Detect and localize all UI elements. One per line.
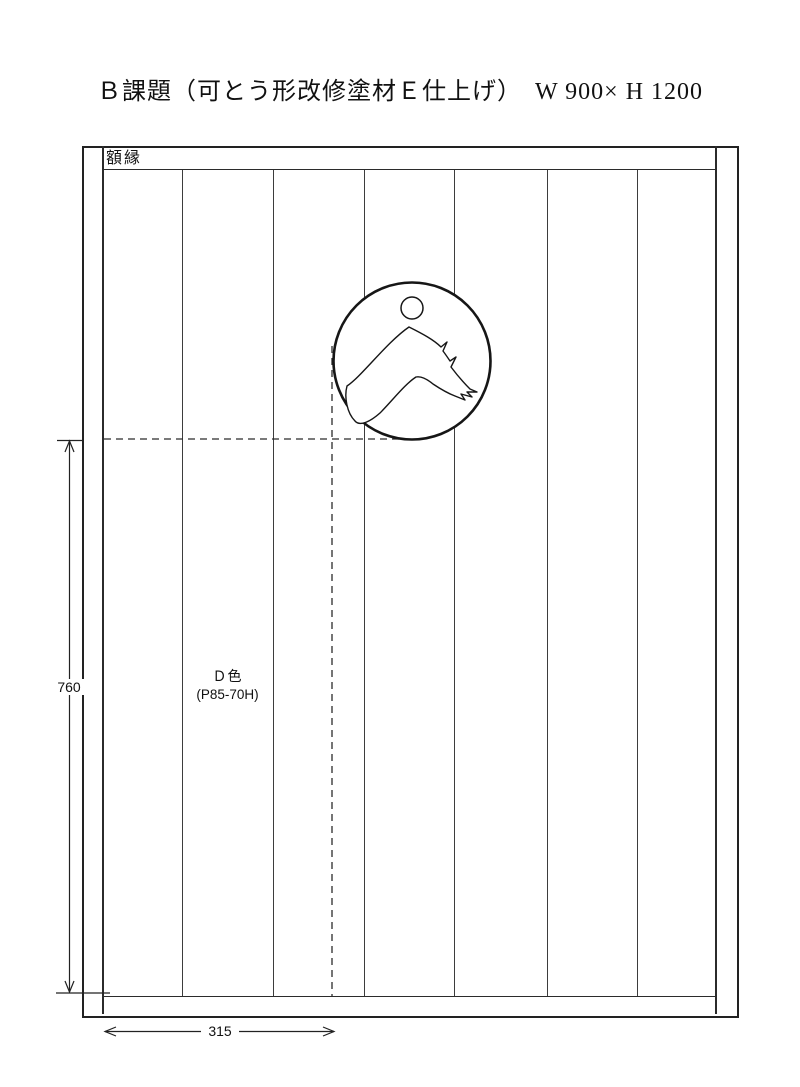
drawing-sheet: Ｂ課題（可とう形改修塗材Ｅ仕上げ） W 900× H 1200 額縁 Ｄ色 (P…: [0, 0, 800, 1087]
panel-color-label: Ｄ色: [180, 668, 275, 685]
emblem-head-circle: [401, 297, 423, 319]
dimension-width-value: 315: [201, 1023, 239, 1039]
panel-color-code: (P85-70H): [172, 686, 283, 703]
dimension-height-value: 760: [53, 679, 85, 695]
frame-label: 額縁: [106, 150, 142, 167]
person-wave-emblem-icon: [331, 280, 493, 442]
